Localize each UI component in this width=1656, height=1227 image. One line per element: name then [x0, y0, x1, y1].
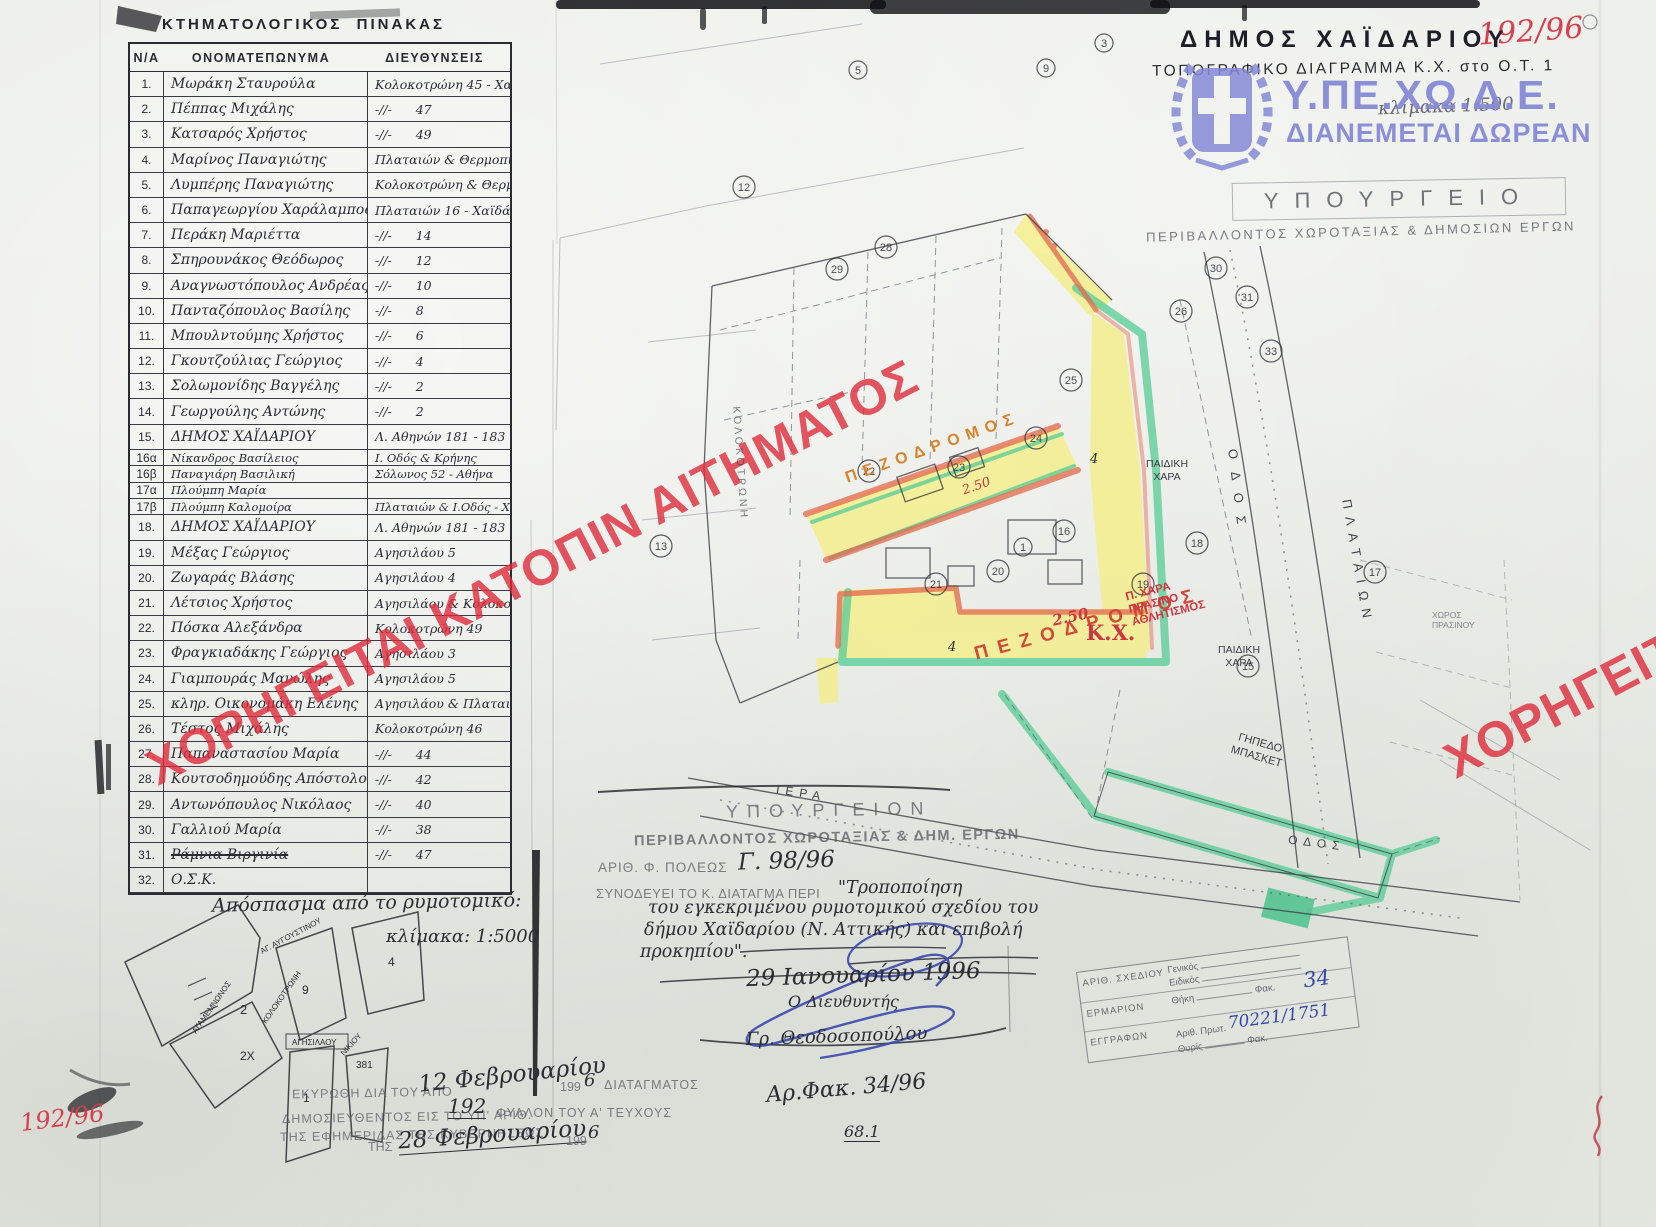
owner-address: -//- 38	[368, 818, 510, 842]
row-index: 25.	[130, 692, 164, 716]
owner-name: Γεωργούλης Αντώνης	[164, 399, 368, 423]
parcel-number: 23	[953, 462, 965, 474]
parcel-number: 25	[1065, 375, 1077, 387]
owner-address: Πλαταιών & Ι.Οδός - Χαϊδάρι	[368, 499, 510, 514]
owner-address: -//- 2	[368, 399, 510, 423]
col-header-address: ΔΙΕΥΘΥΝΣΕΙΣ	[359, 51, 510, 65]
playground-label-1: ΠΑΙΔΙΚΗ ΧΑΡΑ	[1146, 458, 1188, 484]
row-index: 21.	[130, 591, 164, 615]
owner-name: Κατσαρός Χρήστος	[164, 122, 368, 146]
table-row: 30.Γαλλιού Μαρία-//- 38	[130, 818, 510, 843]
inset-parcel-9: 9	[302, 983, 309, 997]
decree-quote-line3: δήμου Χαϊδαρίου (Ν. Αττικής) και επιβολή	[644, 920, 1023, 940]
owner-name: Περάκη Μαριέττα	[164, 223, 368, 247]
filing-row2-fak-label: Φακ.	[1254, 982, 1276, 996]
owner-name: Ζωγαράς Βλάσης	[164, 566, 368, 590]
row-index: 17β	[130, 499, 164, 514]
owner-address: -//- 8	[368, 299, 510, 323]
decree-file-number: Γ. 98/96	[738, 846, 836, 875]
agency-logo-text: Υ.ΠΕ.ΧΩ.Δ.Ε.	[1282, 72, 1560, 119]
table-row: 17βΠλούμπη ΚαλομοίραΠλαταιών & Ι.Οδός - …	[130, 499, 510, 515]
table-row: 3.Κατσαρός Χρήστος-//- 49	[130, 122, 510, 147]
table-row: 14.Γεωργούλης Αντώνης-//- 2	[130, 399, 510, 424]
parcel-number: 9	[1043, 63, 1049, 75]
playground1-line1: ΠΑΙΔΙΚΗ	[1146, 458, 1188, 471]
row-index: 3.	[130, 122, 164, 146]
row-index: 6.	[130, 198, 164, 222]
row-index: 24.	[130, 667, 164, 691]
dim-mark-1: 4	[1090, 452, 1098, 467]
ministry-stamp-line1: ΥΠΟΥΡΓΕΙΟ	[1264, 184, 1535, 215]
inset-parcel-2x: 2Χ	[240, 1049, 255, 1063]
owner-name: Νίκανδρος Βασίλειος	[164, 450, 368, 465]
owner-name: Πόσκα Αλεξάνδρα	[164, 616, 368, 640]
green-note-line2: ΠΡΑΣΙΝΟΥ	[1432, 620, 1475, 630]
table-row: 6.Παπαγεωργίου ΧαράλαμποςΠλαταιών 16 - Χ…	[130, 198, 510, 223]
green-space-note: ΧΩΡΟΣ ΠΡΑΣΙΝΟΥ	[1432, 610, 1475, 630]
parcel-number: 5	[855, 65, 861, 77]
owner-address: -//- 40	[368, 792, 510, 816]
owner-name: Μπουλντούμης Χρήστος	[164, 324, 368, 348]
owner-name: Ο.Σ.Κ.	[164, 868, 368, 892]
table-row: 16βΠαναγιάρη ΒασιλικήΣόλωνος 52 - Αθήνα	[130, 466, 510, 482]
inset-parcel-381: 381	[356, 1060, 373, 1071]
owner-address: Λ. Αθηνών 181 - 183	[368, 515, 510, 539]
owner-address: Κολοκοτρώνη & Θερμοπυλών 3	[368, 173, 510, 197]
playground2-line1: ΠΑΙΔΙΚΗ	[1218, 644, 1260, 657]
row-index: 19.	[130, 541, 164, 565]
row-index: 16α	[130, 450, 164, 465]
row-index: 7.	[130, 223, 164, 247]
owner-address: -//- 42	[368, 767, 510, 791]
table-row: 29.Αντωνόπουλος Νικόλαος-//- 40	[130, 792, 510, 817]
playground-label-2: ΠΑΙΔΙΚΗ ΧΑΡΑ	[1218, 644, 1260, 670]
table-row: 17αΠλούμπη Μαρία	[130, 483, 510, 499]
row-index: 22.	[130, 616, 164, 640]
owner-address: -//- 44	[368, 742, 510, 766]
row-index: 13.	[130, 374, 164, 398]
signer-title: Ο Διευθυντής	[788, 992, 899, 1011]
row-index: 1.	[130, 72, 164, 96]
parcel-number: 1	[1020, 542, 1026, 554]
filing-row1-field-b: Ειδικός	[1169, 974, 1201, 989]
inset-street-agisilaou: ΑΓΗΣΙΛΑΟΥ	[292, 1038, 337, 1047]
table-row: 18.ΔΗΜΟΣ ΧΑΪΔΑΡΙΟΥΛ. Αθηνών 181 - 183	[130, 515, 510, 540]
table-header: Ν/Α ΟΝΟΜΑΤΕΠΩΝΥΜΑ ΔΙΕΥΘΥΝΣΕΙΣ	[130, 44, 510, 72]
row-index: 2.	[130, 97, 164, 121]
owner-address	[368, 868, 510, 892]
row-index: 4.	[130, 148, 164, 172]
ministry-stamp-frame: ΥΠΟΥΡΓΕΙΟ	[1232, 177, 1567, 221]
owner-name: Πλούμπη Καλομοίρα	[164, 499, 368, 514]
parcel-number: 17	[1369, 567, 1381, 579]
table-row: 11.Μπουλντούμης Χρήστος-//- 6	[130, 324, 510, 349]
table-row: 9.Αναγνωστόπουλος Ανδρέας-//- 10	[130, 274, 510, 299]
inset-street-top-diag: ΑΓ. ΑΥΓΟΥΣΤΙΝΟΥ	[259, 916, 324, 956]
playground1-line2: ΧΑΡΑ	[1146, 471, 1188, 484]
pub-line4-year-hand: 6	[588, 1122, 599, 1143]
table-row: 15.ΔΗΜΟΣ ΧΑΪΔΑΡΙΟΥΛ. Αθηνών 181 - 183	[130, 425, 510, 450]
agency-tagline: ΔΙΑΝΕΜΕΤΑΙ ΔΩΡΕΑΝ	[1286, 118, 1591, 149]
row-index: 12.	[130, 349, 164, 373]
parcel-number: 20	[992, 566, 1004, 578]
parcel-number: 24	[1030, 433, 1042, 445]
owner-name: Αναγνωστόπουλος Ανδρέας	[164, 274, 368, 298]
row-index: 14.	[130, 399, 164, 423]
inset-street-kolokotroni: ΚΟΛΟΚΟΤΡΩΝΗ	[260, 969, 303, 1025]
row-index: 15.	[130, 425, 164, 449]
parcel-number: 21	[930, 579, 942, 591]
owner-address: -//- 47	[368, 97, 510, 121]
owner-address: -//- 47	[368, 843, 510, 867]
parcel-number: 3	[1101, 38, 1107, 50]
parcel-number: 28	[880, 242, 892, 254]
table-row: 31.Ράμνια Βιργινία-//- 47	[130, 843, 510, 868]
owner-address: Αγησιλάου & Πλαταιών	[368, 692, 510, 716]
owner-name: Παναγιάρη Βασιλική	[164, 466, 368, 481]
owner-address: Κολοκοτρώνη 46	[368, 717, 510, 741]
row-index: 30.	[130, 818, 164, 842]
inset-parcel-4: 4	[388, 955, 395, 969]
owner-address: Ι. Οδός & Κρήνης	[368, 450, 510, 465]
row-index: 8.	[130, 248, 164, 272]
table-row: 2.Πέππας Μιχάλης-//- 47	[130, 97, 510, 122]
row-index: 23.	[130, 641, 164, 665]
filing-row2-value: 34	[1302, 965, 1332, 992]
owner-name: Μαρίνος Παναγιώτης	[164, 148, 368, 172]
row-index: 10.	[130, 299, 164, 323]
pub-line1-year-gray: 199	[560, 1080, 581, 1094]
owner-address: -//- 2	[368, 374, 510, 398]
parcel-number: 26	[1175, 306, 1187, 318]
col-header-name: ΟΝΟΜΑΤΕΠΩΝΥΜΑ	[163, 51, 359, 65]
owner-name: Σολωμονίδης Βαγγέλης	[164, 374, 368, 398]
table-row: 4.Μαρίνος ΠαναγιώτηςΠλαταιών & Θερμοπυλώ…	[130, 148, 510, 173]
pub-line4-prefix: ΤΗΣ	[368, 1140, 392, 1154]
table-row: 12.Γκουτζούλιας Γεώργιος-//- 4	[130, 349, 510, 374]
table-row: 10.Πανταζόπουλος Βασίλης-//- 8	[130, 299, 510, 324]
parcel-number: 13	[655, 541, 667, 553]
owner-name: ΔΗΜΟΣ ΧΑΪΔΑΡΙΟΥ	[164, 515, 368, 539]
decree-quote-line4: προκηπίου".	[640, 942, 747, 962]
owner-address: -//- 14	[368, 223, 510, 247]
owner-name: Λυμπέρης Παναγιώτης	[164, 173, 368, 197]
row-index: 20.	[130, 566, 164, 590]
row-index: 9.	[130, 274, 164, 298]
table-row: 13.Σολωμονίδης Βαγγέλης-//- 2	[130, 374, 510, 399]
owner-name: Γκουτζούλιας Γεώργιος	[164, 349, 368, 373]
owner-address: Πλαταιών & Θερμοπυλών	[368, 148, 510, 172]
pub-line2-hand: 192	[448, 1094, 486, 1119]
owner-address: -//- 10	[368, 274, 510, 298]
owner-name: Πλούμπη Μαρία	[164, 483, 368, 498]
table-row: 7.Περάκη Μαριέττα-//- 14	[130, 223, 510, 248]
decree-quote-line1: "Τροποποίηση	[838, 878, 962, 898]
decree-ministry-line1: ΥΠΟΥΡΓΕΙΟΝ	[726, 798, 933, 823]
page-mark: 68.1	[844, 1122, 880, 1142]
row-index: 29.	[130, 792, 164, 816]
owner-name: Πέππας Μιχάλης	[164, 97, 368, 121]
inset-scale: κλίμακα: 1:5000	[386, 926, 539, 947]
table-row: 32.Ο.Σ.Κ.	[130, 868, 510, 893]
owner-address: Σόλωνος 52 - Αθήνα	[368, 466, 510, 481]
filing-row2-field: Θήκη	[1171, 993, 1195, 1007]
col-header-index: Ν/Α	[130, 51, 163, 65]
playground2-line2: ΧΑΡΑ	[1218, 657, 1260, 670]
parcel-number: 12	[738, 182, 750, 194]
table-title: ΚΤΗΜΑΤΟΛΟΓΙΚΟΣ ΠΙΝΑΚΑΣ	[162, 16, 445, 33]
owner-name: Πανταζόπουλος Βασίλης	[164, 299, 368, 323]
owner-name: Αντωνόπουλος Νικόλαος	[164, 792, 368, 816]
decree-file-label: ΑΡΙΘ. Φ. ΠΟΛΕΩΣ	[598, 860, 728, 875]
municipality-title: ΔΗΜΟΣ ΧΑΪΔΑΡΙΟΥ	[1180, 26, 1511, 54]
owner-name: Σπηρουνάκος Θεόδωρος	[164, 248, 368, 272]
owner-address: -//- 4	[368, 349, 510, 373]
parcel-number: 18	[1191, 538, 1203, 550]
decree-quote-line2: του εγκεκριμένου ρυμοτομικού σχεδίου του	[648, 898, 1038, 918]
inset-parcel-2: 2	[240, 1002, 247, 1017]
pub-line1-suffix: ΔΙΑΤΑΓΜΑΤΟΣ	[604, 1078, 699, 1092]
row-index: 16β	[130, 466, 164, 481]
dim-mark-2: 4	[948, 640, 956, 655]
owner-address	[368, 483, 510, 498]
table-row: 8.Σπηρουνάκος Θεόδωρος-//- 12	[130, 248, 510, 273]
table-row: 1.Μωράκη ΣταυρούλαΚολοκοτρώνη 45 - Χαϊδά…	[130, 72, 510, 97]
table-row: 5.Λυμπέρης ΠαναγιώτηςΚολοκοτρώνη & Θερμο…	[130, 173, 510, 198]
owner-name: Γαλλιού Μαρία	[164, 818, 368, 842]
pub-line1-year-hand: 6	[584, 1070, 595, 1091]
row-index: 11.	[130, 324, 164, 348]
owner-address: -//- 49	[368, 122, 510, 146]
row-index: 17α	[130, 483, 164, 498]
owner-name: Μέξας Γεώργιος	[164, 541, 368, 565]
owner-address: Λ. Αθηνών 181 - 183	[368, 425, 510, 449]
owner-name: Μωράκη Σταυρούλα	[164, 72, 368, 96]
row-index: 32.	[130, 868, 164, 892]
parcel-number: 16	[1058, 526, 1070, 538]
public-space-label: Κ.Χ.	[1086, 620, 1135, 645]
table-row: 16αΝίκανδρος ΒασίλειοςΙ. Οδός & Κρήνης	[130, 450, 510, 466]
row-index: 5.	[130, 173, 164, 197]
parcel-number: 29	[831, 264, 843, 276]
owner-address: Πλαταιών 16 - Χαϊδάρι	[368, 198, 510, 222]
scanned-topographic-sheet: 2829222324252616121201918151759312133031…	[0, 0, 1656, 1227]
row-index: 18.	[130, 515, 164, 539]
pub-line4-year-gray: 199	[566, 1134, 587, 1148]
owner-address: Κολοκοτρώνη 45 - Χαϊδάρι	[368, 72, 510, 96]
owner-name: Παπαγεωργίου Χαράλαμπος	[164, 198, 368, 222]
owner-name: ΔΗΜΟΣ ΧΑΪΔΑΡΙΟΥ	[164, 425, 368, 449]
parcel-number: 31	[1241, 292, 1253, 304]
green-note-line1: ΧΩΡΟΣ	[1432, 610, 1475, 620]
table-row: 19.Μέξας ΓεώργιοςΑγησιλάου 5	[130, 541, 510, 566]
owner-address: -//- 12	[368, 248, 510, 272]
owner-address: -//- 6	[368, 324, 510, 348]
parcel-number: 30	[1210, 263, 1222, 275]
ministry-emblem-icon	[1162, 52, 1282, 174]
green-filled-rect	[1261, 888, 1315, 929]
parcel-number: 33	[1265, 346, 1277, 358]
owner-name: Ράμνια Βιργινία	[164, 843, 368, 867]
owner-name: Λέτσιος Χρήστος	[164, 591, 368, 615]
row-index: 31.	[130, 843, 164, 867]
